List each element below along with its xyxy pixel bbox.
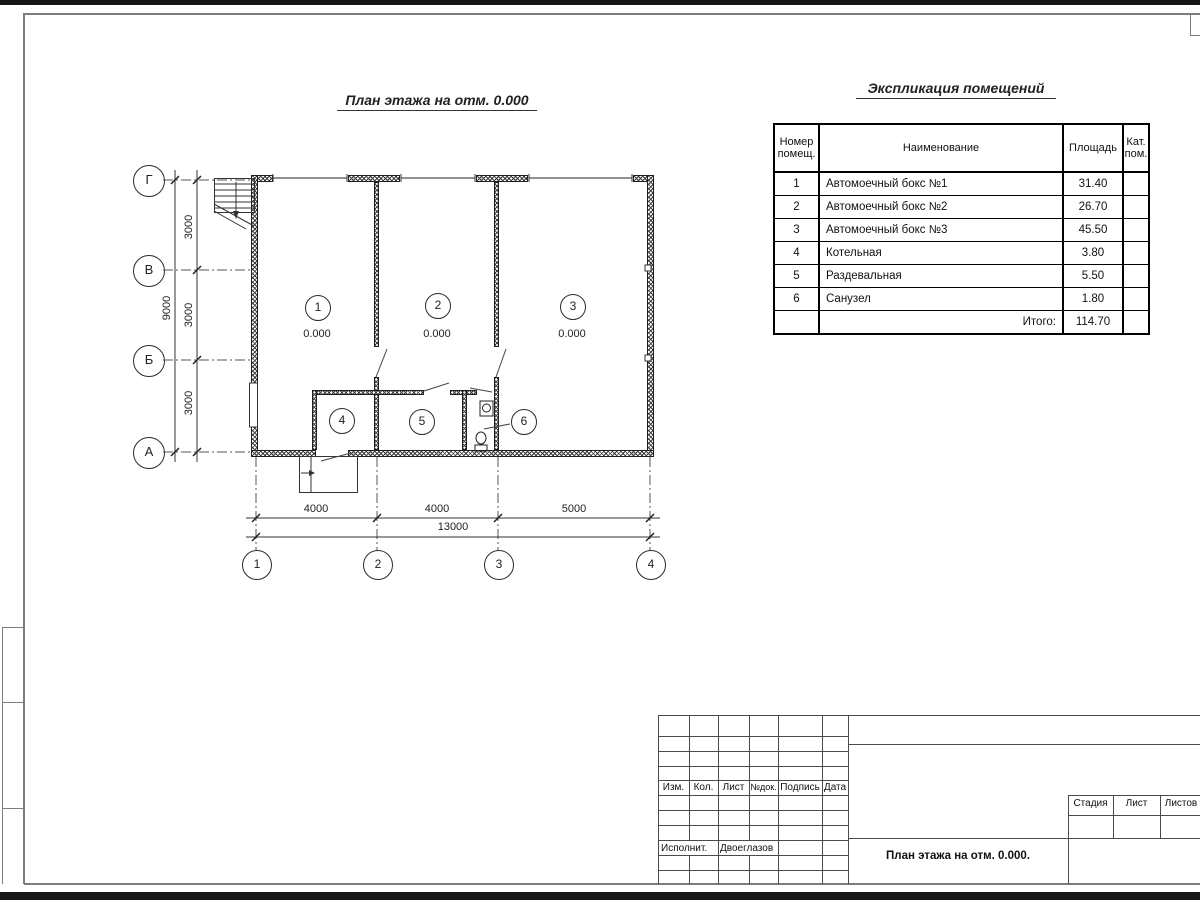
cell-cat [1123,242,1149,265]
door-leaves [321,349,506,461]
dimension-lines [175,170,660,537]
cell-name: Котельная [819,242,1063,265]
cell-cat [1123,288,1149,311]
tb-sheets-label: Листов [1160,798,1200,809]
cell-cat [1123,265,1149,288]
entrance-arrow-head [309,470,315,476]
cell-empty [1123,311,1149,335]
cell-area: 26.70 [1063,196,1123,219]
cell-empty [774,311,819,335]
wall-marker [645,265,651,271]
tb-col-data: Дата [822,782,848,793]
cell-cat [1123,219,1149,242]
table-row: 4 Котельная 3.80 [774,242,1149,265]
cell-name: Автомоечный бокс №3 [819,219,1063,242]
tb-drawing-name: План этажа на отм. 0.000. [848,850,1068,862]
explication-table: Номерпомещ. Наименование Площадь Кат.пом… [773,123,1150,335]
tb-col-podpis: Подпись [778,782,822,793]
toilet-icon [475,432,487,451]
table-row: 2 Автомоечный бокс №2 26.70 [774,196,1149,219]
col-header-name: Наименование [819,124,1063,172]
cell-num: 5 [774,265,819,288]
cell-area: 45.50 [1063,219,1123,242]
tb-col-list: Лист [718,782,749,793]
col-header-cat: Кат.пом. [1123,124,1149,172]
cell-area: 31.40 [1063,172,1123,196]
cell-cat [1123,196,1149,219]
tb-sheet-label: Лист [1113,798,1160,809]
total-value: 114.70 [1063,311,1123,335]
table-row: 6 Санузел 1.80 [774,288,1149,311]
cell-num: 3 [774,219,819,242]
stairs-treads [214,184,254,229]
cell-num: 2 [774,196,819,219]
cell-num: 6 [774,288,819,311]
cell-area: 1.80 [1063,288,1123,311]
cell-name: Раздевальная [819,265,1063,288]
tb-col-izm: Изм. [658,782,689,793]
cell-name: Санузел [819,288,1063,311]
leader-line-room6 [484,424,510,429]
cell-num: 4 [774,242,819,265]
col-header-area: Площадь [1063,124,1123,172]
table-row: 5 Раздевальная 5.50 [774,265,1149,288]
tb-executor-name: Двоеглазов [720,843,773,854]
tb-col-kol: Кол. [689,782,718,793]
col-header-num: Номерпомещ. [774,124,819,172]
axis-lines [163,180,650,550]
tb-stage-label: Стадия [1068,798,1113,809]
drawing-sheet: План этажа на отм. 0.000 Экспликация пом… [0,0,1200,900]
table-header-row: Номерпомещ. Наименование Площадь Кат.пом… [774,124,1149,172]
cell-name: Автомоечный бокс №2 [819,196,1063,219]
table-row: 3 Автомоечный бокс №3 45.50 [774,219,1149,242]
sink-icon [480,401,493,416]
cell-num: 1 [774,172,819,196]
table-row: 1 Автомоечный бокс №1 31.40 [774,172,1149,196]
total-label: Итого: [819,311,1063,335]
cell-area: 3.80 [1063,242,1123,265]
dimension-ticks [171,176,654,541]
cell-area: 5.50 [1063,265,1123,288]
window [250,383,258,427]
table-total-row: Итого: 114.70 [774,311,1149,335]
tb-executor-label: Исполнит. [661,843,707,854]
cell-cat [1123,172,1149,196]
wall-marker [645,355,651,361]
tb-col-ndok: №док. [749,782,778,792]
cell-name: Автомоечный бокс №1 [819,172,1063,196]
